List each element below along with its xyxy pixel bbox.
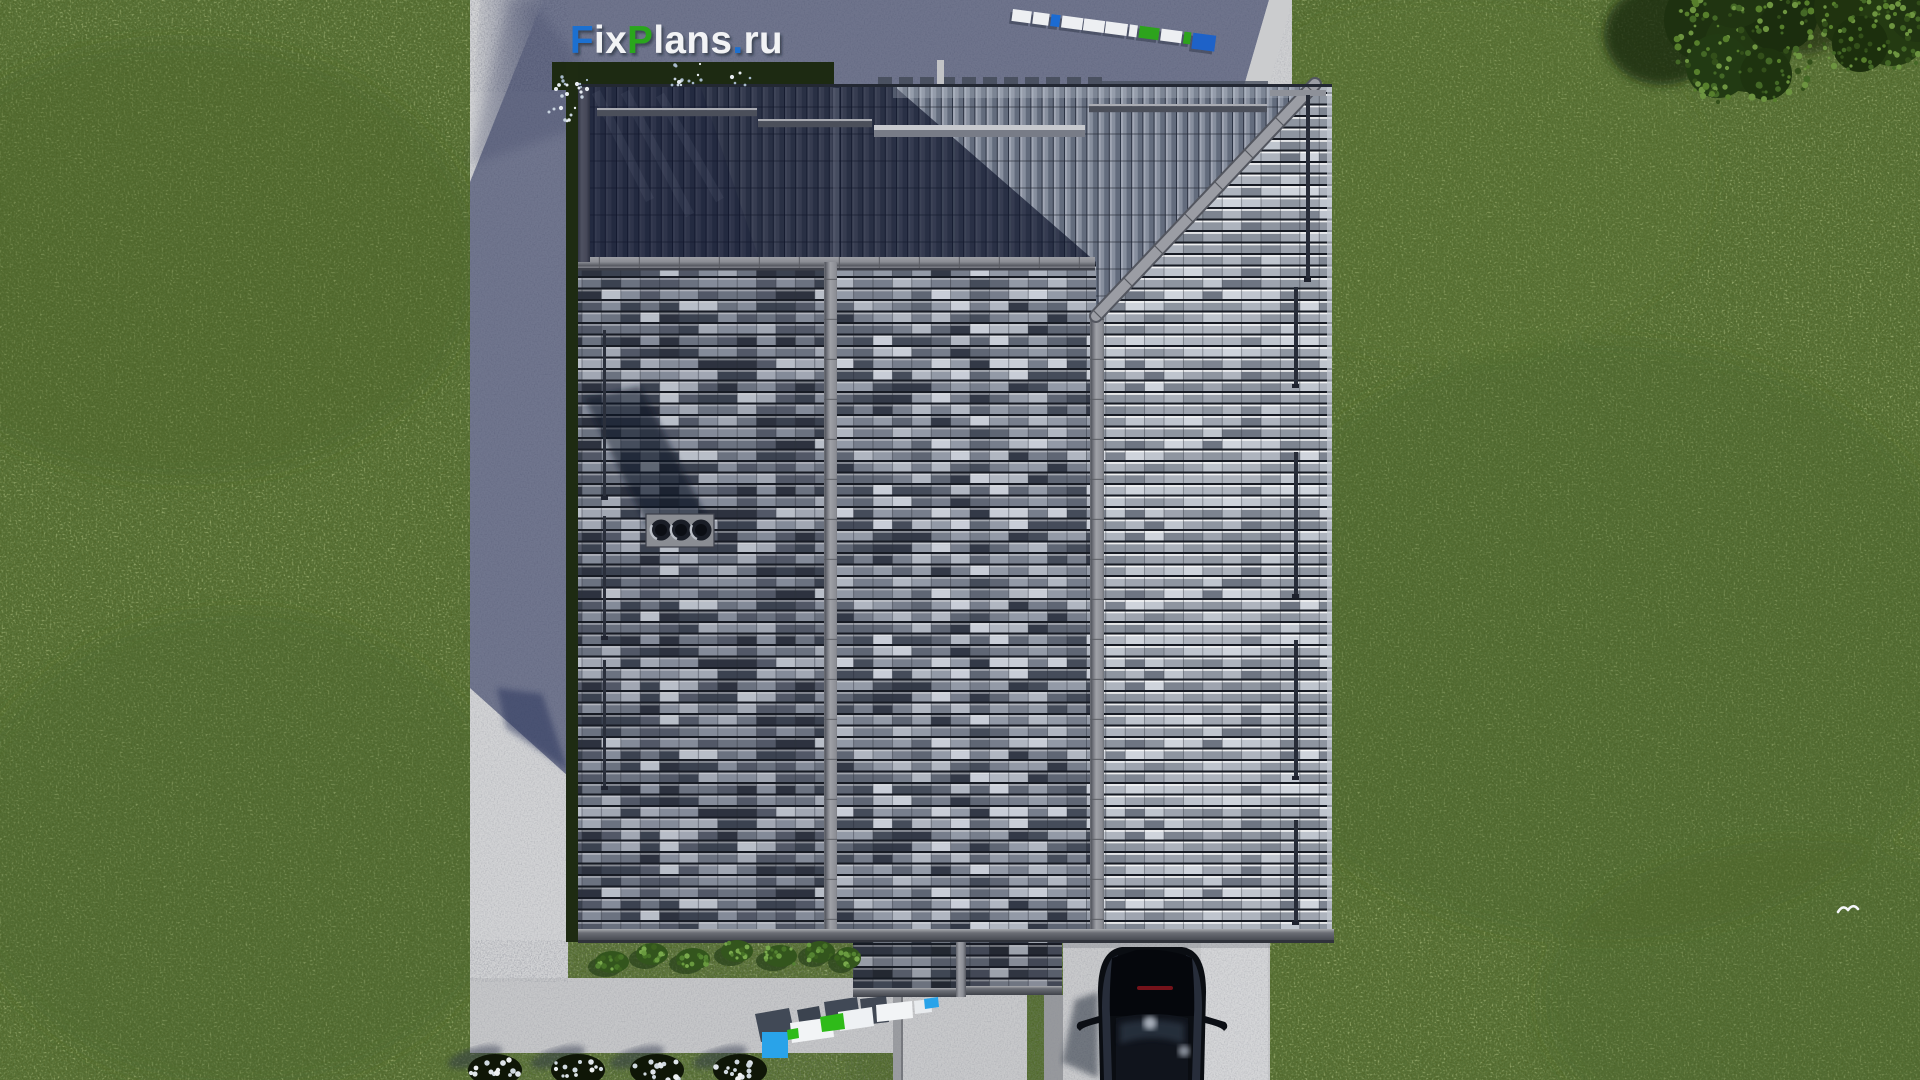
- svg-text:FixPlans.ru: FixPlans.ru: [570, 19, 783, 62]
